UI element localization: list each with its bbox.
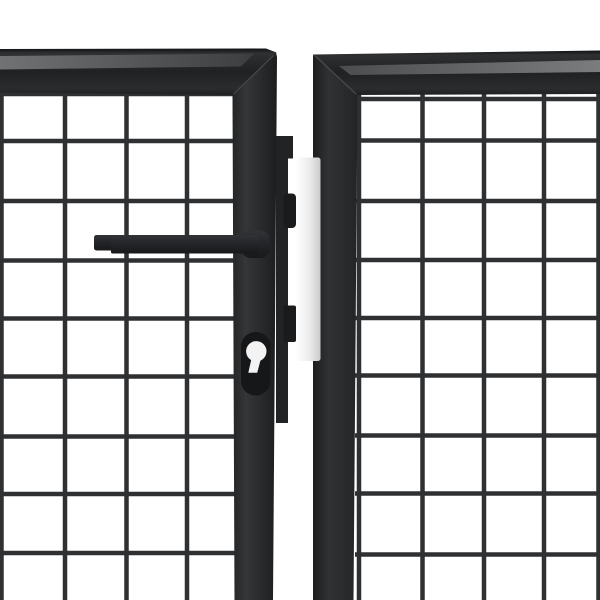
lock-case — [276, 136, 288, 423]
latch-bolt — [284, 194, 297, 229]
gate-photo-canvas — [0, 0, 600, 600]
keyhole-circle — [246, 341, 266, 361]
lock-cylinder — [241, 332, 271, 396]
dead-bolt — [284, 306, 297, 343]
gate-product-image — [0, 0, 600, 600]
left-leaf-lock-stile — [233, 53, 278, 600]
handle-lever-bar — [111, 235, 259, 254]
lock-cover-plate — [296, 158, 321, 362]
